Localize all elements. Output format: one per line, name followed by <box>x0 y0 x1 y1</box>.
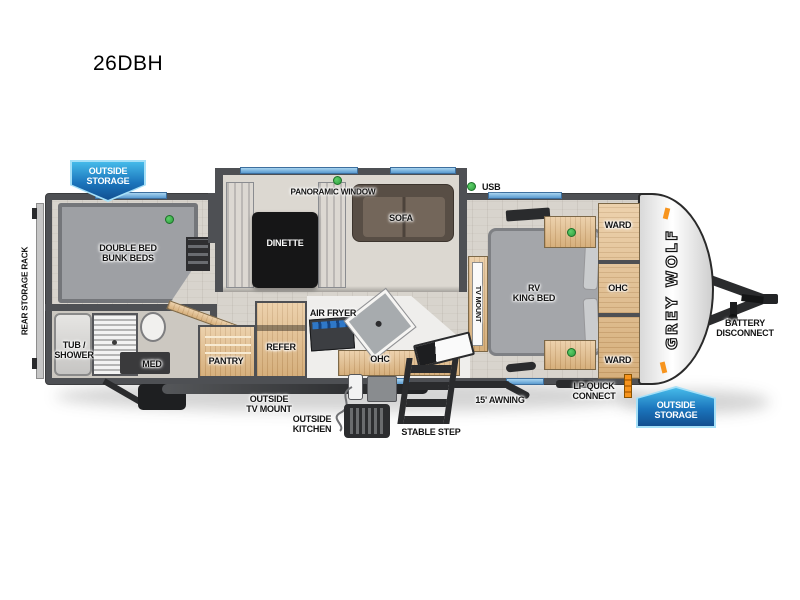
usb-indicator-nightstand-bottom <box>567 348 576 357</box>
awning-label: 15' AWNING <box>475 395 524 405</box>
dinette-label: DINETTE <box>266 238 303 248</box>
outside-storage-front-label: OUTSIDE STORAGE <box>638 401 714 421</box>
rear-storage-rack-label: REAR STORAGE RACK <box>20 247 29 335</box>
brand-logo: GREY WOLF <box>663 228 681 350</box>
usb-indicator-slide <box>333 176 342 185</box>
rv-king-bed-label: RV KING BED <box>513 283 555 303</box>
panoramic-window-label: PANORAMIC WINDOW <box>291 187 376 196</box>
window-bedroom <box>488 192 562 199</box>
grill-slats <box>350 408 384 434</box>
window-slide-right <box>390 167 456 174</box>
dinette-bench-right <box>318 182 346 288</box>
bunk-partition-wall <box>208 193 215 243</box>
lp-quick-connect-fitting <box>624 374 632 398</box>
sink-drain <box>374 320 382 328</box>
toilet <box>140 312 166 342</box>
sofa-label: SOFA <box>389 213 413 223</box>
rear-rack-bar <box>36 203 44 379</box>
air-fryer-label: AIR FRYER <box>310 308 356 318</box>
portable-grill <box>344 404 390 438</box>
dinette-table <box>252 212 318 288</box>
lp-quick-connect-label: LP QUICK CONNECT <box>572 381 615 401</box>
tv-mount-label: TV MOUNT <box>474 286 482 323</box>
rear-rack-mount <box>32 358 37 369</box>
usb-legend-label: USB <box>482 182 500 192</box>
usb-indicator-bunk <box>165 215 174 224</box>
refer-seam <box>257 325 305 331</box>
awning-arm <box>452 381 510 388</box>
wardrobe-divider <box>598 313 640 317</box>
ohc-bedroom-label: OHC <box>608 283 627 293</box>
refer-label: REFER <box>266 342 296 352</box>
outside-kitchen-label: OUTSIDE KITCHEN <box>293 414 332 434</box>
stable-step-label: STABLE STEP <box>401 427 460 437</box>
wardrobe-divider <box>598 260 640 264</box>
ward-front-label: WARD <box>605 220 632 230</box>
stable-step-unit <box>397 358 458 424</box>
window-slide-left <box>240 167 358 174</box>
bunk-beds-label: DOUBLE BED BUNK BEDS <box>99 243 157 263</box>
usb-indicator-nightstand-top <box>567 228 576 237</box>
battery-disconnect-label: BATTERY DISCONNECT <box>716 318 774 338</box>
tub-shower-label: TUB / SHOWER <box>54 340 93 360</box>
shower-drain <box>112 340 117 345</box>
outside-storage-rear-label: OUTSIDE STORAGE <box>72 167 144 187</box>
pantry-label: PANTRY <box>209 356 244 366</box>
bunk-ladder <box>186 237 210 271</box>
model-title: 26DBH <box>93 52 163 76</box>
outside-tv-mount-label: OUTSIDE TV MOUNT <box>246 394 291 414</box>
outside-kitchen-box <box>367 376 397 402</box>
refrigerator <box>255 301 307 378</box>
slideout-left-wall <box>215 168 223 292</box>
pantry-shelves <box>205 332 251 354</box>
floorplan-canvas: 26DBH REAR STORAGE RACK GREY WOLF DOUBLE… <box>0 0 800 600</box>
slideout-right-wall <box>459 168 467 292</box>
dinette-bench-left <box>226 182 254 288</box>
ohc-kitchen-label: OHC <box>370 354 389 364</box>
pantry-cabinet <box>198 325 256 378</box>
usb-legend-dot <box>467 182 476 191</box>
med-label: MED <box>142 359 161 369</box>
ward-rear-label: WARD <box>605 355 632 365</box>
rear-rack-mount <box>32 208 37 219</box>
